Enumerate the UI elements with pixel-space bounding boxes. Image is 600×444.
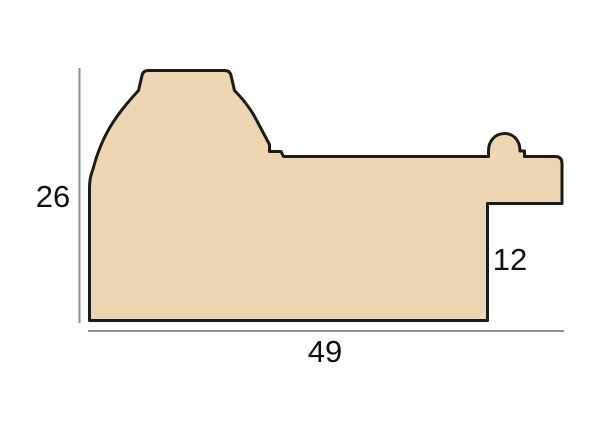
moulding-profile-diagram: 26 49 12 <box>0 0 600 444</box>
profile-drawing-canvas: 26 49 12 <box>0 0 600 444</box>
moulding-cross-section-shape <box>90 71 563 321</box>
width-dimension-label: 49 <box>308 334 342 369</box>
rebate-dimension-label: 12 <box>493 242 527 277</box>
height-dimension-label: 26 <box>36 179 70 214</box>
